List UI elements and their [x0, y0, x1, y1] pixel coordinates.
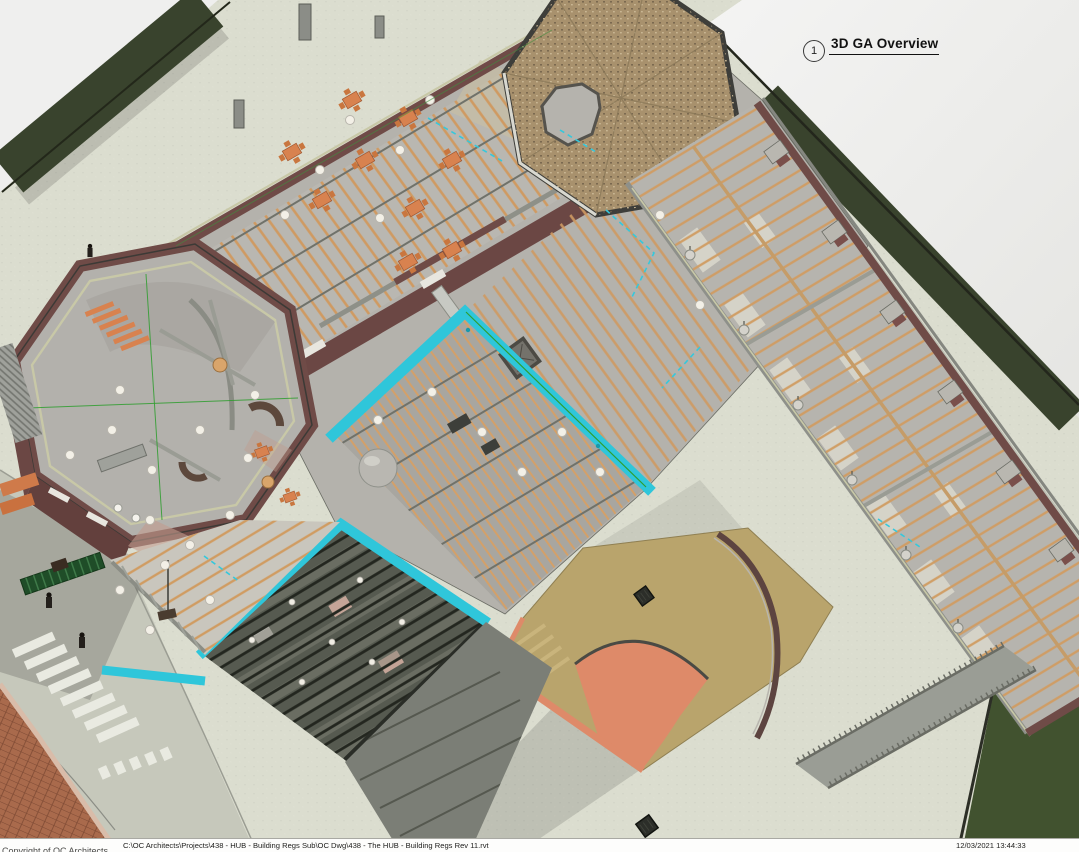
dome-rooflight — [359, 449, 397, 487]
chimney — [234, 100, 244, 128]
person — [79, 632, 85, 648]
view-title-text: 3D GA Overview — [829, 36, 944, 53]
view-number: 1 — [811, 45, 817, 57]
view-number-bubble: 1 — [803, 40, 825, 62]
chimney — [299, 4, 311, 40]
person — [87, 244, 92, 257]
view-title: 1 3D GA Overview — [803, 36, 944, 62]
sheet-footer: Copyright of OC Architects C:\OC Archite… — [0, 838, 1079, 852]
file-path-text: C:\OC Architects\Projects\438 - HUB - Bu… — [123, 841, 489, 850]
3d-view-canvas[interactable] — [0, 0, 1079, 852]
person — [46, 592, 52, 608]
view-title-underline — [829, 54, 939, 55]
timestamp-text: 12/03/2021 13:44:33 — [956, 841, 1026, 850]
drawing-sheet: 1 3D GA Overview Copyright of OC Archite… — [0, 0, 1079, 852]
copyright-text: Copyright of OC Architects — [2, 846, 108, 852]
column — [375, 16, 384, 38]
